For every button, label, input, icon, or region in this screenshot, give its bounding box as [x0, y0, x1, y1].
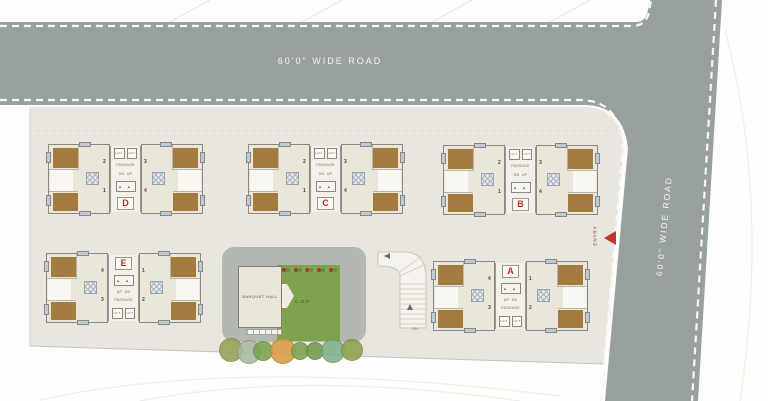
- lift-label: LIFT: [509, 149, 520, 160]
- building-core: LIFT LIFT PASSAGE DN UP ▲ ▲ D: [110, 146, 141, 212]
- balcony: [595, 153, 600, 164]
- room-brown: [253, 193, 278, 211]
- building-b: LIFT LIFT PASSAGE DN UP ▲ ▲ B 2 3 1 4: [443, 145, 598, 215]
- room-brown: [171, 302, 196, 320]
- lift-block: LIFT LIFT: [499, 316, 523, 327]
- staircase: ▲ ▲: [501, 283, 521, 294]
- lift-block: LIFT LIFT: [509, 149, 533, 160]
- balcony: [44, 304, 49, 315]
- wall-line: [473, 146, 474, 171]
- unit-number: 1: [529, 276, 532, 282]
- wall-line: [463, 262, 464, 287]
- balcony: [46, 195, 51, 206]
- wall-line: [568, 192, 597, 193]
- building-wing-right: [141, 144, 203, 214]
- lift-label: LIFT: [512, 316, 523, 327]
- stair-hatch: [481, 173, 494, 186]
- room-white: [176, 279, 199, 300]
- balcony: [595, 196, 600, 207]
- building-c: LIFT LIFT PASSAGE DN UP ▲ ▲ C 2 3 1 4: [248, 144, 403, 214]
- flower-dot: [333, 268, 337, 272]
- room-white: [445, 171, 468, 192]
- stair-hatch: [286, 172, 299, 185]
- wall-line: [47, 300, 76, 301]
- wall-line: [444, 192, 473, 193]
- room-brown: [438, 265, 463, 285]
- room-brown: [53, 193, 78, 211]
- balcony: [158, 320, 170, 325]
- unit-number: 4: [101, 268, 104, 274]
- hall-steps: [246, 329, 282, 335]
- building-wing-right: [526, 261, 588, 331]
- balcony: [400, 152, 405, 163]
- unit-number: 4: [344, 188, 347, 194]
- passage-label: PASSAGE: [501, 307, 520, 311]
- balcony: [441, 153, 446, 164]
- balcony: [77, 251, 89, 256]
- wall-line: [49, 191, 78, 192]
- tree: [341, 339, 363, 361]
- lift-label: LIFT: [114, 148, 125, 159]
- lift-block: LIFT LIFT: [114, 148, 138, 159]
- balcony: [431, 312, 436, 323]
- balcony: [160, 142, 172, 147]
- balcony: [79, 211, 91, 216]
- unit-number: 3: [488, 305, 491, 311]
- balcony: [46, 152, 51, 163]
- unit-number: 1: [498, 189, 501, 195]
- lift-label: LIFT: [499, 316, 510, 327]
- building-letter: D: [117, 197, 134, 210]
- entry-label: ENTRY: [593, 221, 598, 251]
- passage-label: PASSAGE: [511, 165, 530, 169]
- lift-label: LIFT: [522, 149, 533, 160]
- room-white: [48, 279, 71, 300]
- banquet-hall-label: BANQUET HALL: [242, 294, 277, 300]
- balcony: [198, 261, 203, 272]
- unit-number: 3: [344, 159, 347, 165]
- balcony: [555, 212, 567, 217]
- stair-hatch: [84, 281, 97, 294]
- balcony: [160, 211, 172, 216]
- unit-number: 1: [303, 188, 306, 194]
- stair-hatch: [352, 172, 365, 185]
- building-letter: A: [502, 265, 519, 278]
- balcony: [441, 196, 446, 207]
- room-brown: [373, 193, 398, 211]
- road-label-top: 60'0" WIDE ROAD: [250, 56, 410, 66]
- lawn-label: C.O.P: [295, 299, 310, 304]
- building-wing-left: [48, 144, 110, 214]
- room-brown: [53, 148, 78, 168]
- passage-label: PASSAGE: [116, 164, 135, 168]
- room-white: [573, 171, 596, 192]
- wall-line: [173, 169, 202, 170]
- building-core: LIFT LIFT PASSAGE DN UP ▲ ▲ B: [505, 147, 536, 213]
- walkway-path: [378, 252, 426, 328]
- building-a: LIFT LIFT PASSAGE UP DN ▲ ▲ A 4 1 3 2: [433, 261, 588, 331]
- balcony: [360, 211, 372, 216]
- stair-hatch: [152, 172, 165, 185]
- room-white: [563, 287, 586, 308]
- wall-line: [372, 145, 373, 170]
- staircase: ▲ ▲: [116, 181, 136, 192]
- building-core: LIFT LIFT PASSAGE UP DN ▲ ▲ E: [108, 255, 139, 321]
- wall-line: [49, 169, 78, 170]
- wall-line: [558, 308, 587, 309]
- balcony: [464, 259, 476, 264]
- balcony: [585, 312, 590, 323]
- room-white: [435, 287, 458, 308]
- walkway-dn-label: DN: [412, 326, 418, 331]
- balcony: [545, 259, 557, 264]
- balcony: [279, 211, 291, 216]
- stair-hatch: [471, 289, 484, 302]
- stair-hatch: [86, 172, 99, 185]
- room-brown: [568, 149, 593, 169]
- wall-line: [78, 145, 79, 170]
- balcony: [158, 251, 170, 256]
- unit-number: 2: [303, 159, 306, 165]
- lift-label: LIFT: [314, 148, 325, 159]
- wall-line: [567, 146, 568, 171]
- wall-line: [47, 278, 76, 279]
- entry-arrow-icon: [604, 231, 616, 245]
- staircase: ▲ ▲: [114, 275, 134, 286]
- walkway: [376, 248, 436, 332]
- stair-hatch: [547, 173, 560, 186]
- dn-up-label: UP DN: [504, 299, 518, 303]
- building-wing-right: [536, 145, 598, 215]
- room-brown: [173, 193, 198, 211]
- balcony: [464, 328, 476, 333]
- wall-line: [278, 145, 279, 170]
- wall-line: [172, 145, 173, 170]
- balcony: [200, 195, 205, 206]
- balcony: [279, 142, 291, 147]
- building-core: LIFT LIFT PASSAGE UP DN ▲ ▲ A: [495, 263, 526, 329]
- building-d: LIFT LIFT PASSAGE DN UP ▲ ▲ D 2 3 1 4: [48, 144, 203, 214]
- wall-line: [171, 278, 200, 279]
- room-brown: [438, 310, 463, 328]
- balcony: [198, 304, 203, 315]
- wall-line: [558, 286, 587, 287]
- room-white: [50, 170, 73, 191]
- room-brown: [173, 148, 198, 168]
- wall-line: [76, 254, 77, 279]
- balcony: [585, 269, 590, 280]
- room-brown: [51, 302, 76, 320]
- flower-dot: [298, 268, 302, 272]
- room-white: [250, 170, 273, 191]
- unit-number: 1: [103, 188, 106, 194]
- balcony: [360, 142, 372, 147]
- lift-label: LIFT: [327, 148, 338, 159]
- unit-number: 4: [144, 188, 147, 194]
- balcony: [474, 143, 486, 148]
- balcony: [246, 152, 251, 163]
- room-brown: [448, 194, 473, 212]
- banquet-hall: BANQUET HALL: [238, 266, 282, 328]
- wall-line: [373, 169, 402, 170]
- lift-label: LIFT: [127, 148, 138, 159]
- balcony: [44, 261, 49, 272]
- passage-label: PASSAGE: [316, 164, 335, 168]
- unit-number: 4: [488, 276, 491, 282]
- dn-up-label: DN UP: [514, 174, 528, 178]
- unit-number: 3: [101, 297, 104, 303]
- room-brown: [51, 257, 76, 277]
- building-e: LIFT LIFT PASSAGE UP DN ▲ ▲ E 4 1 3 2: [46, 253, 201, 323]
- balcony: [555, 143, 567, 148]
- balcony: [77, 320, 89, 325]
- staircase: ▲ ▲: [316, 181, 336, 192]
- building-wing-left: [433, 261, 495, 331]
- dn-up-label: DN UP: [319, 173, 333, 177]
- unit-number: 1: [142, 268, 145, 274]
- wall-line: [171, 300, 200, 301]
- building-wing-left: [443, 145, 505, 215]
- wall-line: [249, 169, 278, 170]
- wall-line: [373, 191, 402, 192]
- wall-line: [568, 170, 597, 171]
- balcony: [474, 212, 486, 217]
- room-brown: [558, 310, 583, 328]
- lift-label: LIFT: [125, 308, 136, 319]
- room-brown: [171, 257, 196, 277]
- unit-number: 3: [144, 159, 147, 165]
- balcony: [246, 195, 251, 206]
- unit-number: 4: [539, 189, 542, 195]
- passage-label: PASSAGE: [114, 299, 133, 303]
- lift-label: LIFT: [112, 308, 123, 319]
- lift-block: LIFT LIFT: [314, 148, 338, 159]
- room-brown: [373, 148, 398, 168]
- building-core: LIFT LIFT PASSAGE DN UP ▲ ▲ C: [310, 146, 341, 212]
- room-brown: [253, 148, 278, 168]
- dn-up-label: UP DN: [117, 291, 131, 295]
- unit-number: 2: [142, 297, 145, 303]
- building-wing-left: [46, 253, 108, 323]
- wall-line: [444, 170, 473, 171]
- wall-line: [557, 262, 558, 287]
- room-white: [378, 170, 401, 191]
- unit-number: 2: [103, 159, 106, 165]
- balcony: [545, 328, 557, 333]
- balcony: [431, 269, 436, 280]
- building-wing-right: [139, 253, 201, 323]
- unit-number: 3: [539, 160, 542, 166]
- wall-line: [173, 191, 202, 192]
- dn-up-label: DN UP: [119, 173, 133, 177]
- room-white: [178, 170, 201, 191]
- building-wing-left: [248, 144, 310, 214]
- wall-line: [249, 191, 278, 192]
- room-brown: [568, 194, 593, 212]
- wall-line: [434, 308, 463, 309]
- stair-hatch: [537, 289, 550, 302]
- unit-number: 2: [498, 160, 501, 166]
- building-letter: B: [512, 198, 529, 211]
- balcony: [400, 195, 405, 206]
- lift-block: LIFT LIFT: [112, 308, 136, 319]
- stair-hatch: [150, 281, 163, 294]
- room-brown: [448, 149, 473, 169]
- building-letter: E: [115, 257, 131, 270]
- building-wing-right: [341, 144, 403, 214]
- room-brown: [558, 265, 583, 285]
- clubhouse-pad: C.O.P BANQUET HALL: [222, 247, 366, 342]
- unit-number: 2: [529, 305, 532, 311]
- wall-line: [434, 286, 463, 287]
- staircase: ▲ ▲: [511, 182, 531, 193]
- building-letter: C: [317, 197, 334, 210]
- wall-line: [170, 254, 171, 279]
- balcony: [200, 152, 205, 163]
- balcony: [79, 142, 91, 147]
